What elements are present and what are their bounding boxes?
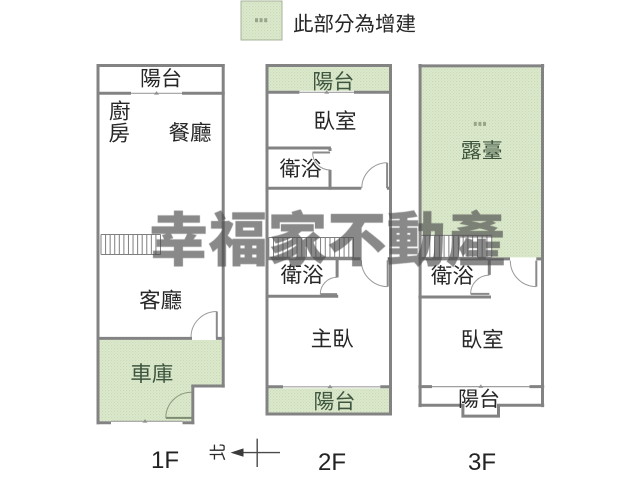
svg-text:2F: 2F (318, 449, 346, 476)
svg-text:1F: 1F (151, 447, 179, 474)
svg-text:3F: 3F (468, 449, 496, 476)
